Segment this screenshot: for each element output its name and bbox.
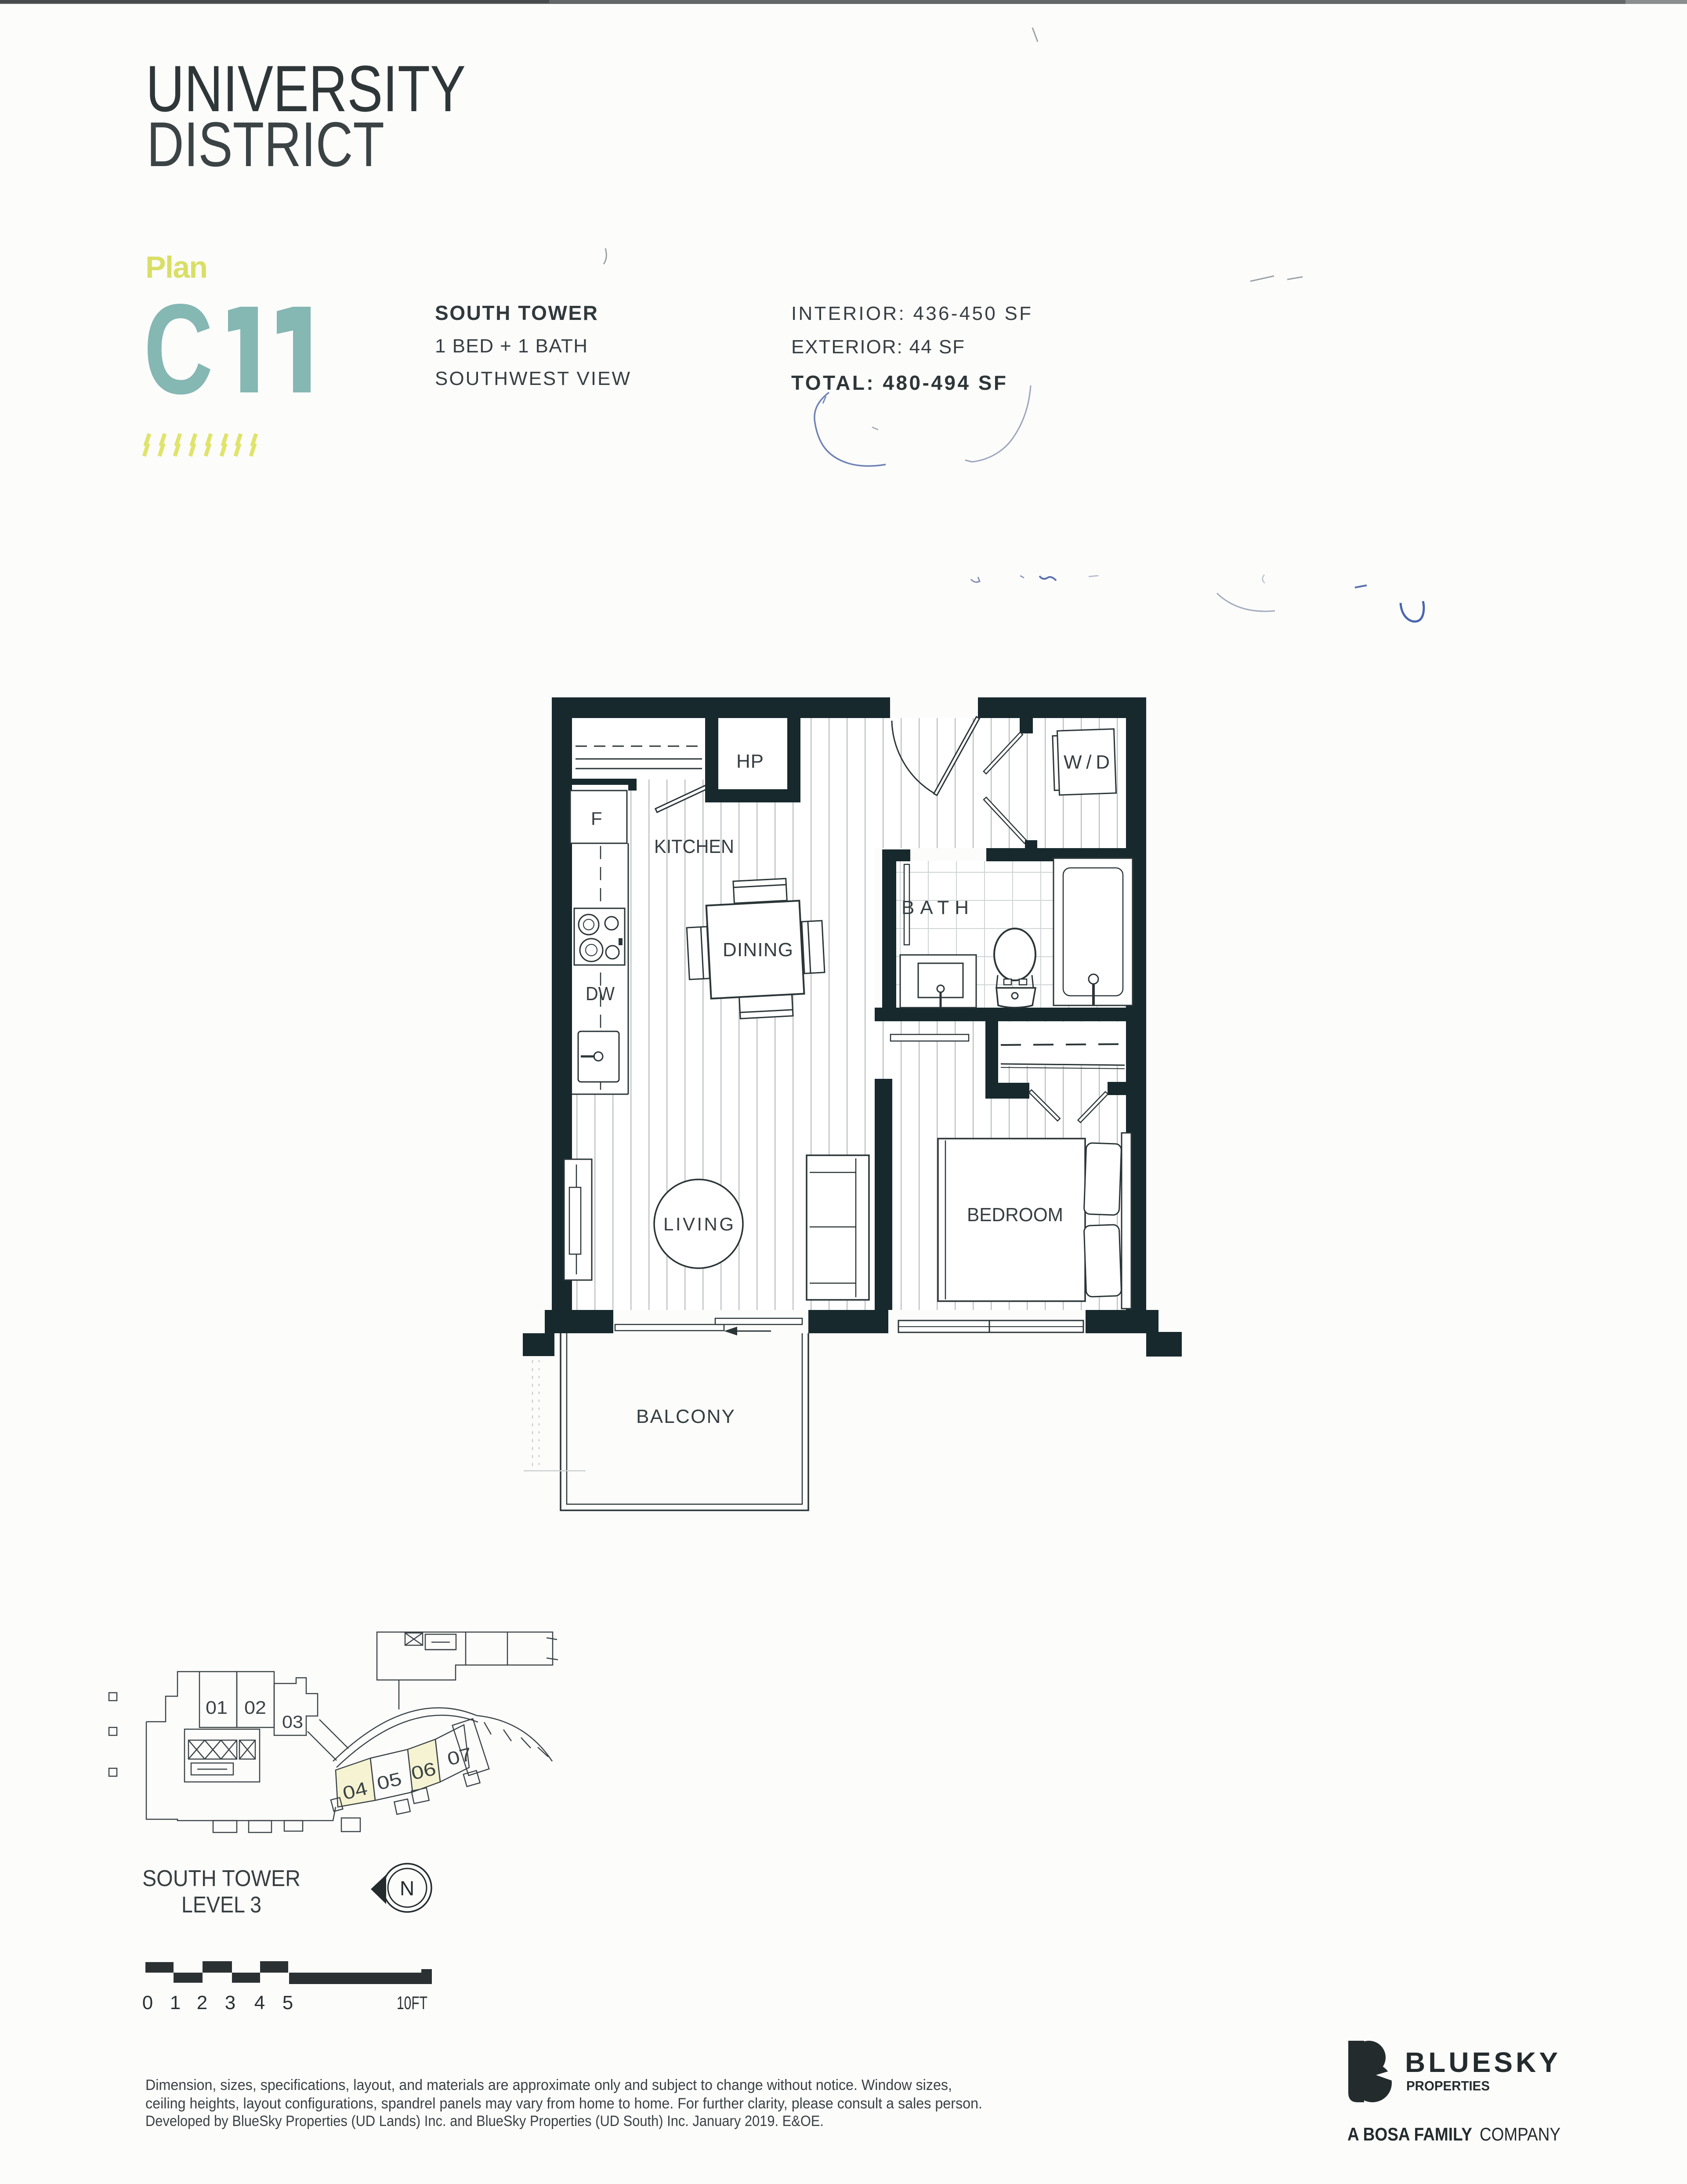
svg-text:Developed by BlueSky Propertie: Developed by BlueSky Properties (UD Land… [145, 2113, 824, 2130]
svg-text:BALCONY: BALCONY [636, 1406, 735, 1427]
svg-text:05: 05 [375, 1768, 403, 1794]
svg-text:N: N [400, 1877, 414, 1900]
svg-text:1: 1 [170, 1992, 181, 2013]
svg-text:SOUTH TOWER: SOUTH TOWER [142, 1866, 300, 1891]
svg-text:DW: DW [586, 983, 615, 1005]
svg-text:EXTERIOR: 44 SF: EXTERIOR: 44 SF [791, 336, 964, 358]
svg-text:INTERIOR: 436-450 SF: INTERIOR: 436-450 SF [791, 303, 1031, 324]
svg-text:BEDROOM: BEDROOM [967, 1204, 1063, 1226]
svg-text:KITCHEN: KITCHEN [654, 836, 734, 857]
svg-text:1 BED + 1 BATH: 1 BED + 1 BATH [435, 335, 587, 357]
svg-text:03: 03 [282, 1712, 303, 1732]
svg-text:DISTRICT: DISTRICT [147, 109, 384, 180]
svg-text:COMPANY: COMPANY [1480, 2124, 1560, 2144]
svg-text:PROPERTIES: PROPERTIES [1406, 2078, 1490, 2093]
svg-text:SOUTHWEST VIEW: SOUTHWEST VIEW [435, 368, 630, 389]
svg-text:5: 5 [282, 1992, 293, 2013]
svg-text:W/D: W/D [1064, 751, 1110, 773]
svg-text:3: 3 [225, 1992, 235, 2013]
svg-text:DINING: DINING [723, 939, 793, 961]
svg-text:4: 4 [254, 1992, 265, 2013]
svg-text:C: C [144, 277, 213, 421]
svg-text:A BOSA FAMILY: A BOSA FAMILY [1347, 2124, 1472, 2144]
svg-text:07: 07 [445, 1743, 474, 1769]
svg-text:LEVEL 3: LEVEL 3 [181, 1892, 261, 1918]
svg-text:BLUESKY: BLUESKY [1405, 2046, 1558, 2078]
svg-text:F: F [591, 808, 602, 829]
svg-text:TOTAL: 480-494 SF: TOTAL: 480-494 SF [791, 371, 1006, 394]
svg-text:10FT: 10FT [397, 1992, 427, 2013]
svg-text:2: 2 [197, 1992, 207, 2013]
svg-text:02: 02 [244, 1697, 266, 1718]
svg-text:ceiling heights, layout config: ceiling heights, layout configurations, … [145, 2095, 982, 2112]
svg-text:0: 0 [142, 1992, 153, 2013]
svg-text:SOUTH TOWER: SOUTH TOWER [435, 301, 597, 324]
svg-text:Dimension, sizes, specificatio: Dimension, sizes, specifications, layout… [145, 2077, 952, 2093]
svg-text:HP: HP [736, 751, 764, 772]
svg-text:01: 01 [206, 1697, 228, 1718]
